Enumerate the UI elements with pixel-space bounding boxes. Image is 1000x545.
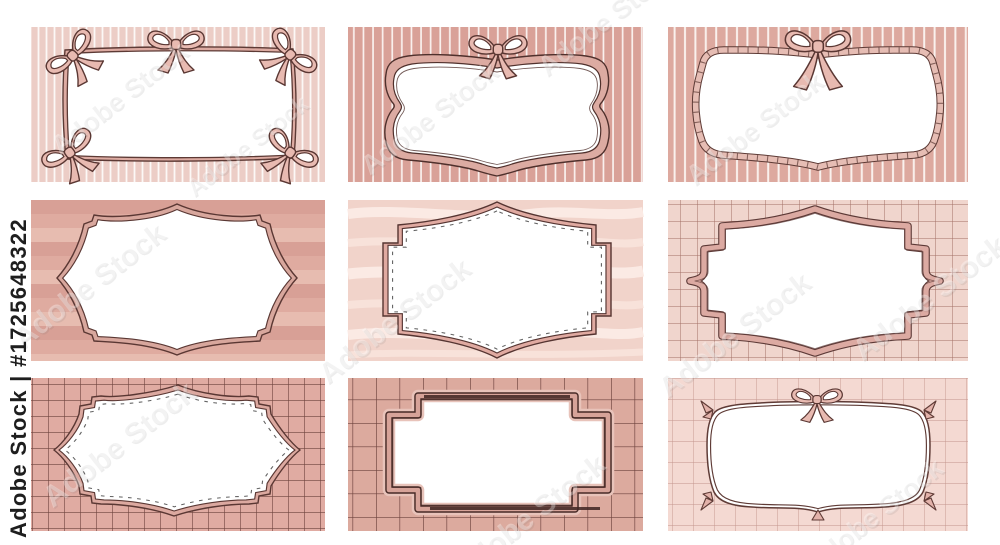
svg-text:Adobe Stock | #1725648322: Adobe Stock | #1725648322 <box>6 218 31 538</box>
